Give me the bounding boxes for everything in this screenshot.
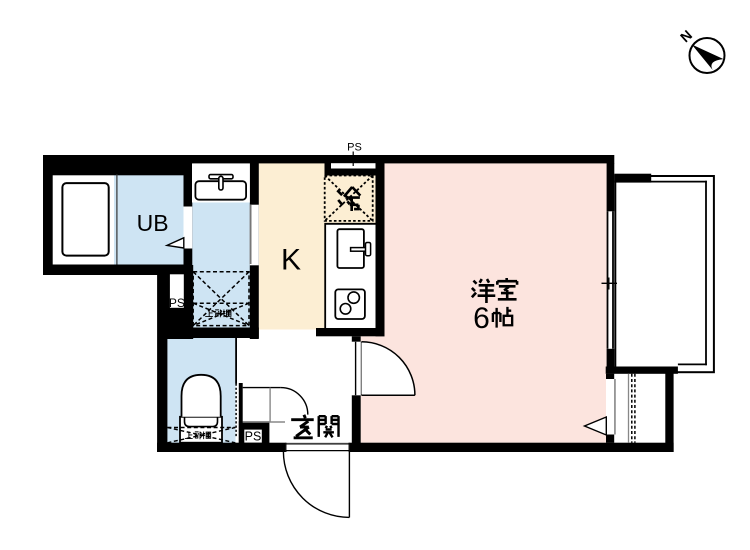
svg-text:PS: PS [245, 430, 262, 444]
svg-text:UB: UB [137, 210, 169, 236]
svg-text:PS: PS [347, 142, 362, 154]
svg-text:6: 6 [473, 302, 490, 335]
svg-text:PS: PS [169, 296, 185, 310]
svg-text:K: K [281, 244, 301, 277]
